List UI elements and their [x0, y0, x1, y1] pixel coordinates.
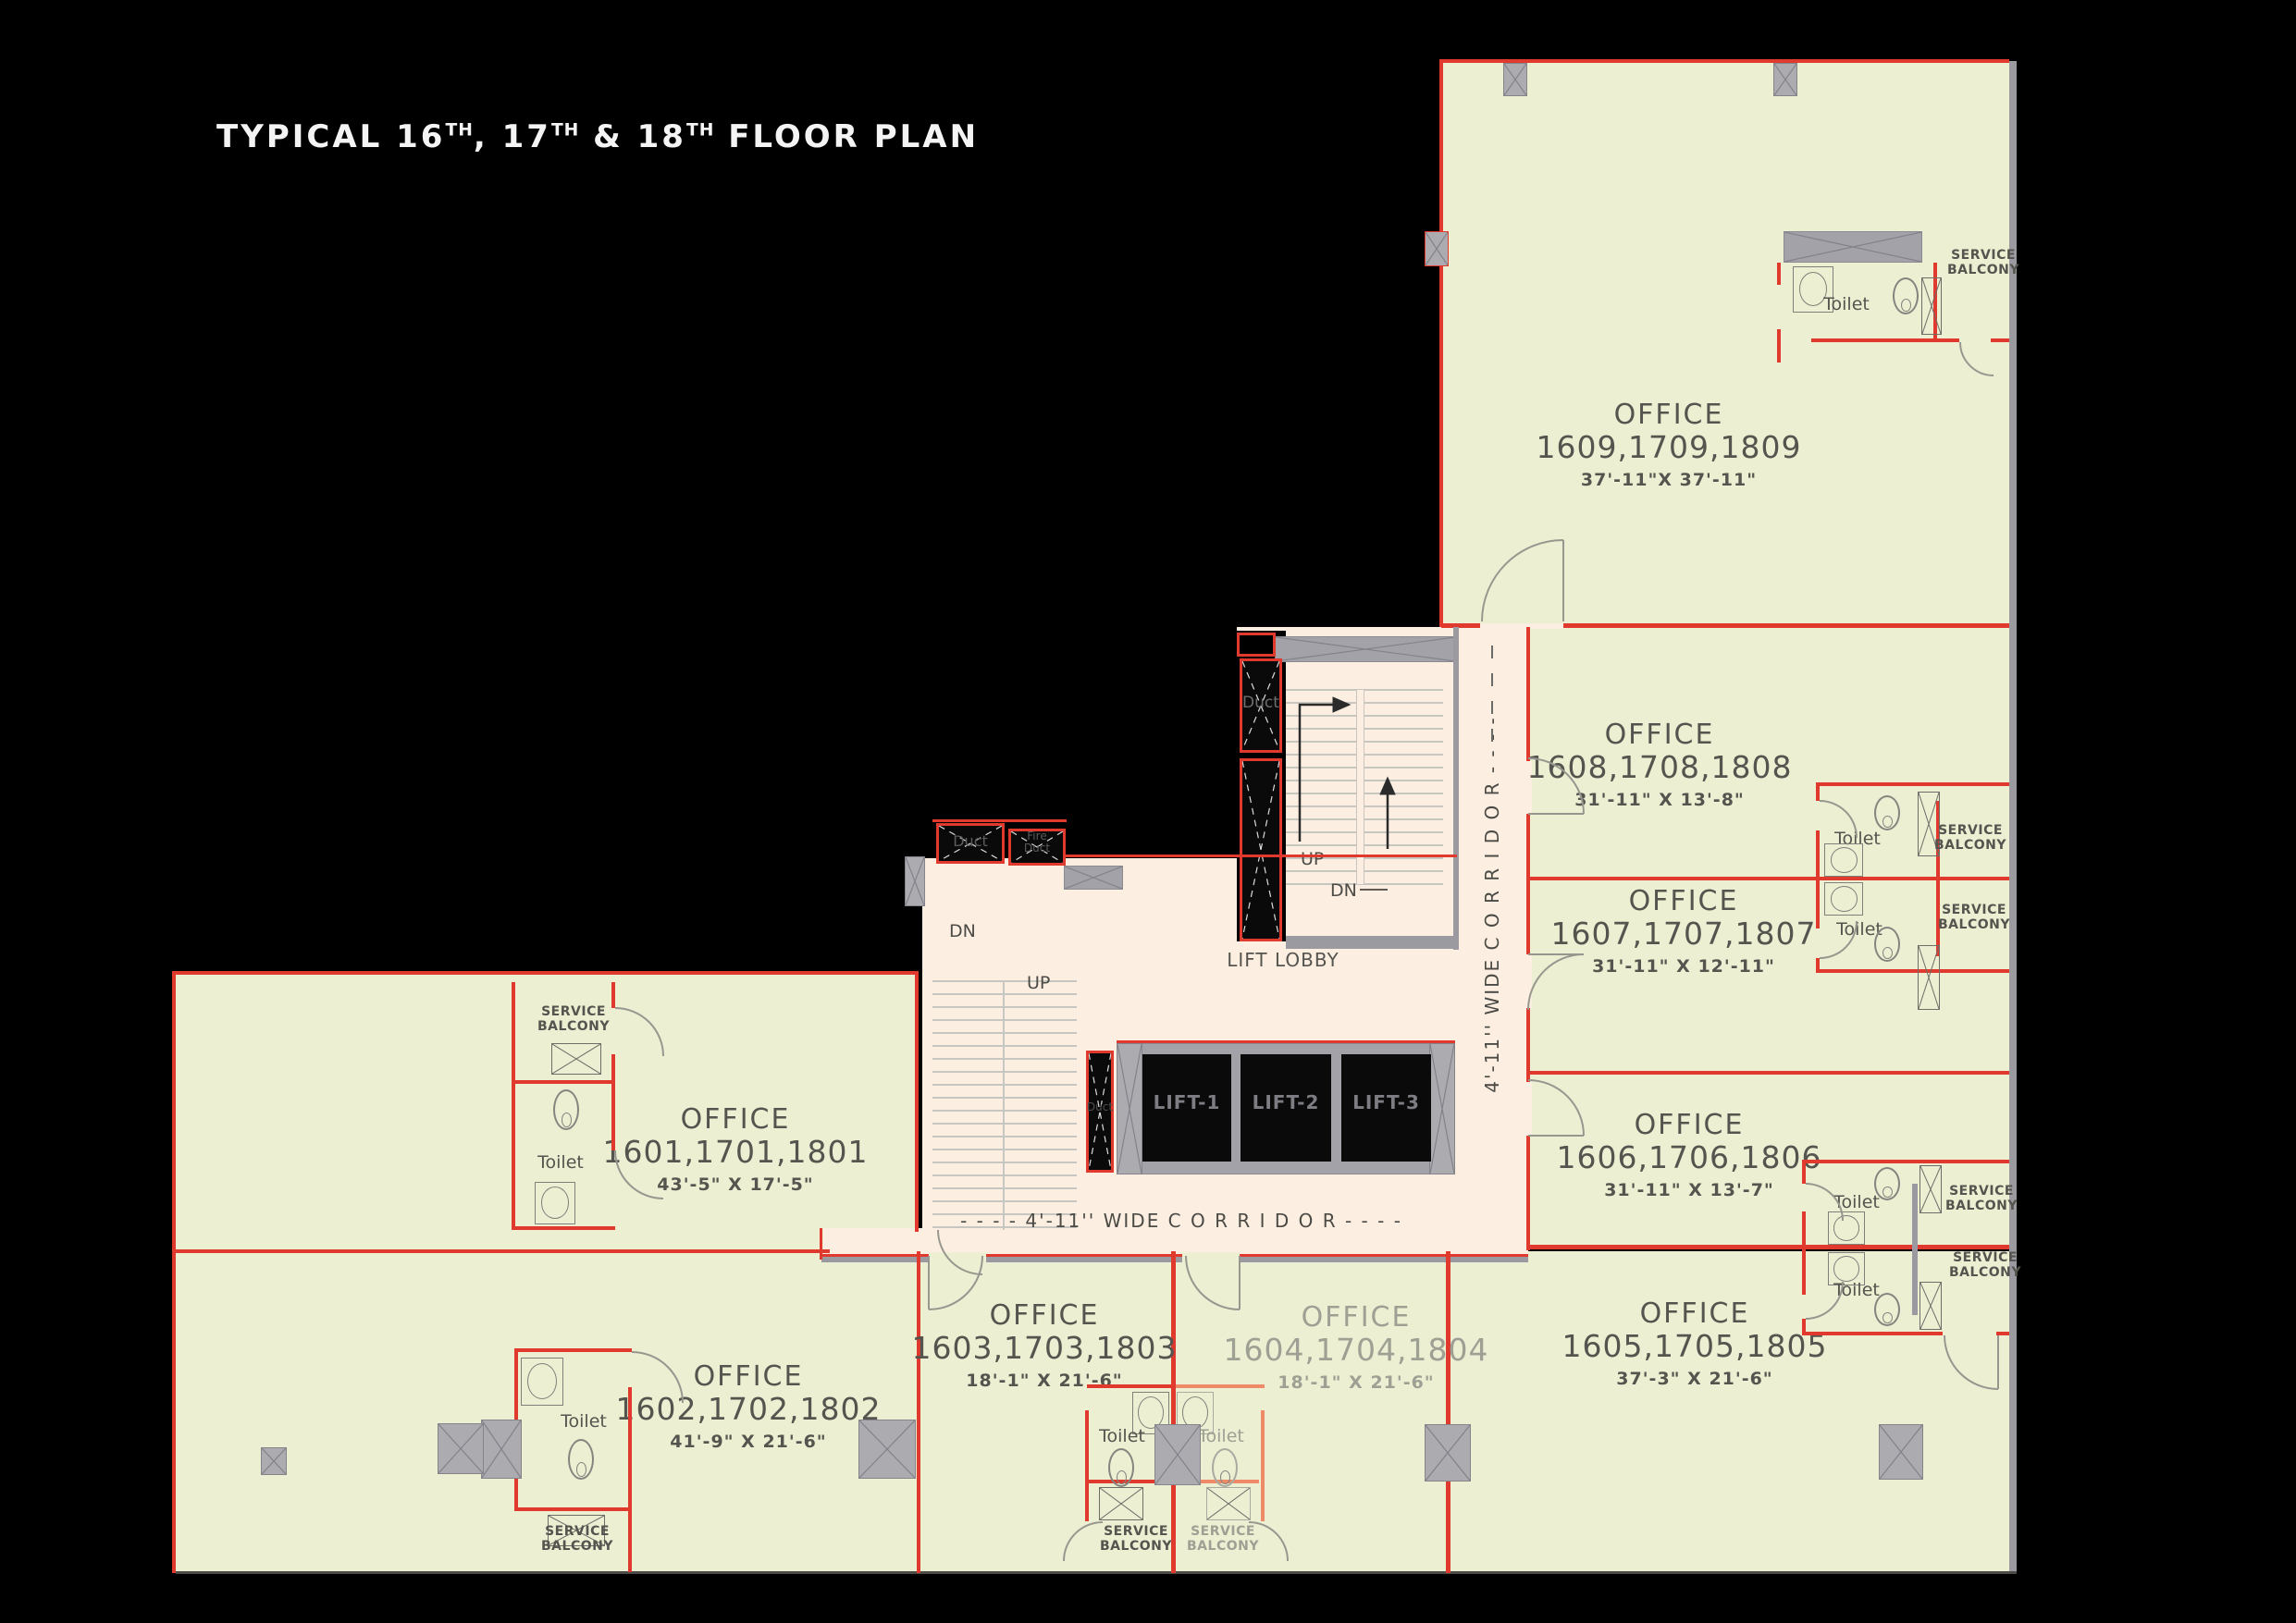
door-toilet-1602: [632, 1352, 683, 1403]
door-1609: [1482, 540, 1563, 621]
door-toilet-1605: [1806, 1282, 1843, 1319]
door-1606: [1528, 1080, 1584, 1136]
door-toilet-1609: [1960, 342, 1994, 375]
door-stairs-left: [938, 1230, 982, 1274]
door-toilet-1606: [1806, 1184, 1843, 1221]
door-balcony-1603: [1064, 1522, 1103, 1561]
door-balcony-1604: [1249, 1522, 1288, 1561]
door-toilet-1601-a: [615, 1008, 663, 1056]
door-1608: [1528, 758, 1584, 814]
door-1603: [929, 1256, 982, 1309]
floor-plan-canvas: TYPICAL 16TH, 17TH & 18TH FLOOR PLAN Duc…: [0, 0, 2296, 1623]
door-toilet-1608: [1820, 801, 1857, 838]
door-arcs-overlay: [0, 0, 2296, 1623]
stairs-top-arrow-right: [1300, 705, 1349, 842]
door-1604: [1186, 1256, 1240, 1309]
door-1607: [1528, 954, 1584, 1010]
door-toilet-1607: [1820, 921, 1857, 958]
door-1605: [1944, 1335, 1998, 1389]
door-toilet-1601-b: [615, 1150, 663, 1199]
